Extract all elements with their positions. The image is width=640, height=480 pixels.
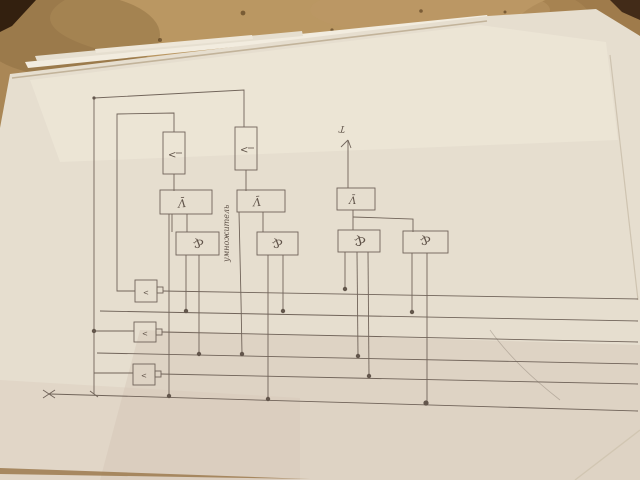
vertical-annotation: умножитель <box>222 205 231 263</box>
input-box-label-2: < <box>142 330 148 338</box>
inverter-label-1: Ʌ̄ <box>177 197 187 211</box>
delay-label-2: < <box>240 145 248 156</box>
input-box-label-1: < <box>143 289 149 297</box>
photo-canvas: < < Ʌ̄ Ʌ̄ Ʌ̄ & & & & < < < T x умножител… <box>0 0 640 480</box>
inverter-label-3: Ʌ̄ <box>348 195 356 207</box>
photo-scene: < < Ʌ̄ Ʌ̄ Ʌ̄ & & & & < < < T x умножител… <box>0 0 640 480</box>
delay-label-1: < <box>168 150 176 161</box>
paper-stack <box>0 9 640 480</box>
input-box-label-3: < <box>141 372 147 380</box>
inverter-label-2: Ʌ̄ <box>252 196 262 210</box>
